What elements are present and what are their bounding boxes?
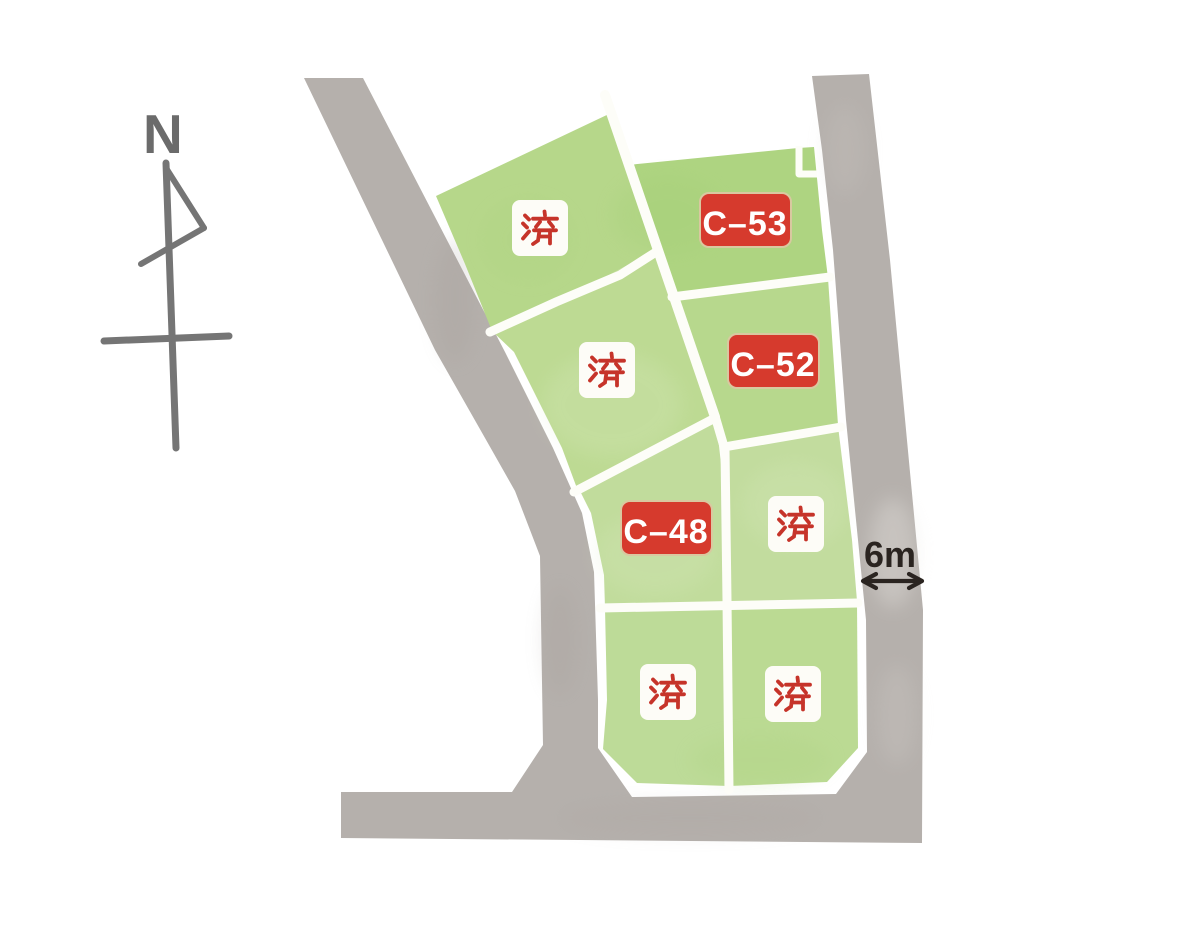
- svg-text:6m: 6m: [864, 534, 916, 575]
- svg-text:N: N: [143, 103, 183, 165]
- svg-text:C–53: C–53: [702, 205, 787, 243]
- svg-text:C–52: C–52: [730, 346, 815, 384]
- svg-text:C–48: C–48: [623, 513, 708, 551]
